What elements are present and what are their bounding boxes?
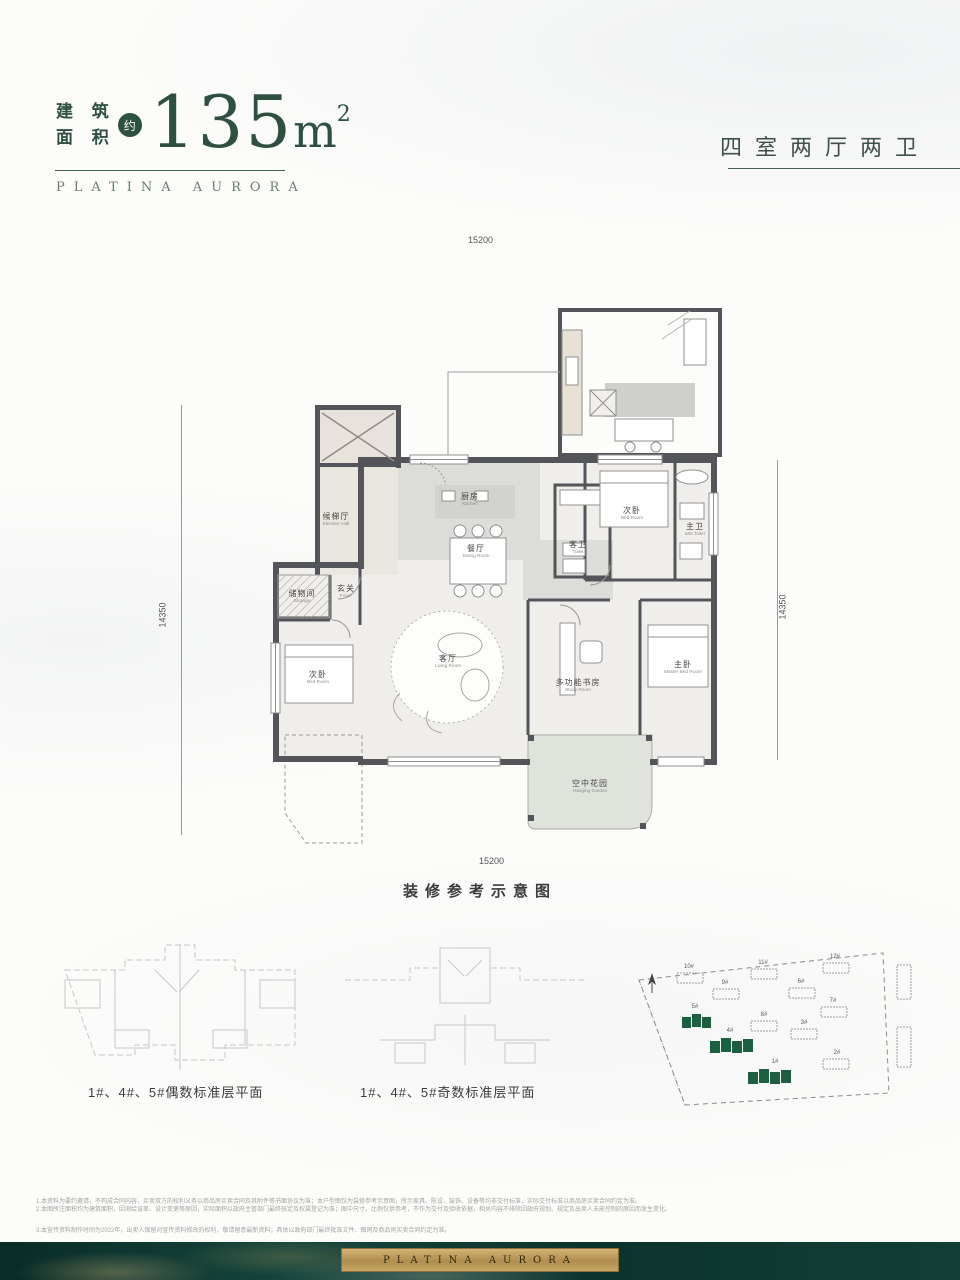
building-label: 7# — [830, 998, 837, 1004]
unit-type: 四室两厅两卫 — [720, 130, 960, 162]
disclaimer-line3: 3.本宣传资料制作时间为2022年，出卖人保留对宣传资料修改的权利，敬请留意最新… — [36, 1228, 928, 1235]
building-label: 6# — [798, 979, 805, 985]
room-label-guest-bath: 客卫Toilet — [569, 541, 587, 555]
even-floor-sketch — [55, 935, 305, 1070]
header-divider — [55, 170, 285, 171]
building-label: 8# — [761, 1012, 768, 1018]
area-unit: m — [293, 104, 337, 158]
brand-name: PLATINA AURORA — [56, 180, 307, 195]
unit-type-divider — [728, 168, 960, 169]
dimension-left: 14350 — [158, 602, 168, 627]
odd-floor-sketch — [340, 935, 590, 1070]
site-plan-svg — [625, 935, 925, 1115]
building-label: 11# — [758, 960, 768, 966]
room-label-bedroom-top: 次卧Bed Room — [618, 507, 646, 521]
area-figure: 135m2 — [150, 92, 351, 158]
building-label: 12# — [830, 954, 840, 960]
disclaimer-line2: 2.本图所注面积均为建筑面积，因测绘误差、设计变更等原因，实际面积以政府主管部门… — [36, 1207, 928, 1214]
dimension-line-left — [181, 405, 182, 835]
footer-brand: PLATINA AURORA — [383, 1255, 577, 1266]
building-label: 9# — [722, 980, 729, 986]
room-label-bedroom-left: 次卧Bed Room — [304, 671, 332, 685]
area-label-line1: 建 筑 — [56, 99, 116, 125]
area-value: 135 — [150, 80, 293, 164]
building-label: 4# — [727, 1028, 734, 1034]
approx-badge: 约 — [118, 113, 142, 137]
footer-band: PLATINA AURORA — [0, 1242, 960, 1280]
area-label-line2: 面 积 — [56, 125, 116, 151]
room-label-elevator-hall: 候梯厅Elevator Hall — [319, 513, 353, 527]
room-label-living: 客厅Living Room — [431, 655, 464, 669]
building-label: 3# — [801, 1020, 808, 1026]
room-label-foyer: 玄关Foyer — [337, 585, 355, 599]
building-label: 2# — [834, 1050, 841, 1056]
room-label-master-bath: 主卫Mst.Toilet — [682, 523, 707, 537]
footer-brand-plaque: PLATINA AURORA — [341, 1248, 619, 1272]
site-plan: 10# 11# 12# 9# 6# 7# 5# 8# 3# 4# 2# 1# — [625, 935, 925, 1115]
disclaimer-line1: 1.本资料为要约邀请，不构成合同内容，买卖双方的权利义务以商品房买卖合同及其附件… — [36, 1199, 928, 1206]
area-label: 建 筑 面 积 — [56, 99, 116, 151]
north-arrow-icon — [648, 973, 656, 993]
area-superscript: 2 — [337, 102, 351, 127]
room-label-study: 多功能书房Study Room — [556, 679, 601, 693]
even-floor-caption: 1#、4#、5#偶数标准层平面 — [88, 1082, 263, 1101]
area-header: 建 筑 面 积 约 135m2 — [56, 92, 351, 158]
unit-type-wrap: 四室两厅两卫 — [720, 130, 960, 162]
building-label: 5# — [692, 1004, 699, 1010]
floor-plan: 候梯厅Elevator Hall 厨房Kitchen 餐厅Dining Room… — [260, 295, 780, 855]
floor-plan-poster: 建 筑 面 积 约 135m2 PLATINA AURORA 四室两厅两卫 15… — [0, 0, 960, 1280]
floor-plan-svg — [260, 295, 780, 855]
room-label-garden: 空中花园Hanging Garden — [568, 780, 612, 794]
room-label-dining: 餐厅Dining Room — [459, 545, 494, 559]
building-label: 1# — [772, 1059, 779, 1065]
dimension-top: 15200 — [468, 235, 493, 245]
building-label: 10# — [684, 964, 694, 970]
room-label-master-bedroom: 主卧Master Bed Room — [659, 661, 707, 675]
room-label-storage: 储物间Storage — [289, 590, 316, 604]
dimension-bottom: 15200 — [479, 856, 504, 866]
room-label-kitchen: 厨房Kitchen — [460, 493, 480, 507]
plan-caption: 装修参考示意图 — [0, 880, 960, 901]
odd-floor-caption: 1#、4#、5#奇数标准层平面 — [360, 1082, 535, 1101]
